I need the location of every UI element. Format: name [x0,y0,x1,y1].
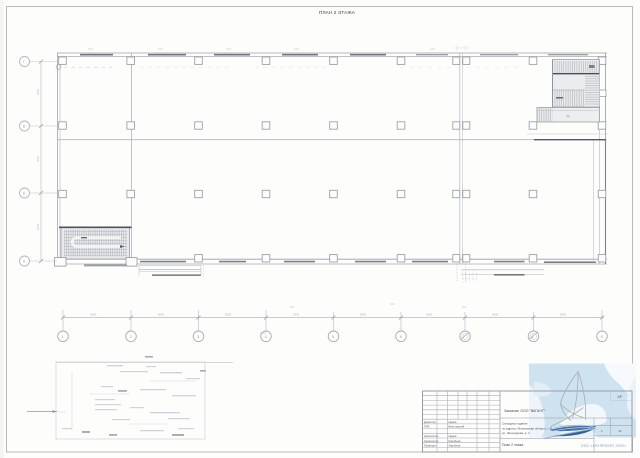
svg-text:6000: 6000 [36,223,40,230]
svg-text:Царев: Царев [449,420,458,424]
svg-text:2000: 2000 [260,331,266,335]
svg-text:Заказчик: ООО "ВАГАНТ": Заказчик: ООО "ВАГАНТ" [504,409,546,413]
svg-text:ПЛАН 2 ЭТАЖА: ПЛАН 2 ЭТАЖА [319,10,356,15]
svg-text:Царев: Царев [449,434,458,438]
svg-text:ул. Загородная, д. 1: ул. Загородная, д. 1 [502,431,530,435]
svg-text:1: 1 [62,335,64,339]
svg-text:11: 11 [619,429,622,433]
svg-text:Б: Б [23,191,25,195]
svg-text:Венгловский: Венгловский [449,425,465,429]
svg-text:9: 9 [601,335,603,339]
svg-text:Архитектор: Архитектор [424,434,439,438]
svg-text:Харчиков: Харчиков [449,444,461,448]
svg-text:6000: 6000 [492,313,499,317]
svg-text:6000: 6000 [293,313,300,317]
svg-text:6000: 6000 [90,313,97,317]
svg-text:ЛК: ЛК [566,115,570,119]
svg-text:Г: Г [23,60,25,64]
svg-text:6000: 6000 [294,48,300,51]
svg-text:6000: 6000 [158,48,164,51]
svg-text:ООО «АРХПРОЕКТ-2000»: ООО «АРХПРОЕКТ-2000» [581,444,626,448]
svg-text:6000: 6000 [36,155,40,162]
svg-text:ГИП: ГИП [424,425,429,429]
svg-text:6000: 6000 [426,313,433,317]
svg-text:600: 600 [390,302,395,306]
svg-text:6000: 6000 [88,48,94,51]
svg-text:5: 5 [332,335,334,339]
svg-text:Коробьев: Коробьев [449,439,461,443]
svg-text:Складское здание: Складское здание [502,422,528,426]
svg-text:6: 6 [400,335,402,339]
svg-text:В: В [23,124,25,128]
svg-text:2: 2 [130,335,132,339]
svg-text:Директор: Директор [424,420,436,424]
svg-text:600: 600 [290,305,295,309]
svg-text:6000: 6000 [158,313,165,317]
svg-text:3: 3 [197,335,199,339]
svg-text:6000: 6000 [36,88,40,95]
svg-text:6000: 6000 [560,313,567,317]
svg-text:Проверил: Проверил [424,444,437,448]
svg-text:6000: 6000 [360,313,367,317]
svg-text:План 2 этажа: План 2 этажа [502,443,523,447]
svg-text:6000: 6000 [430,48,436,51]
svg-text:6000: 6000 [225,313,232,317]
svg-text:4: 4 [265,335,267,339]
svg-text:600: 600 [462,305,467,309]
svg-text:Архитектор: Архитектор [424,439,439,443]
svg-text:6000: 6000 [226,48,232,51]
